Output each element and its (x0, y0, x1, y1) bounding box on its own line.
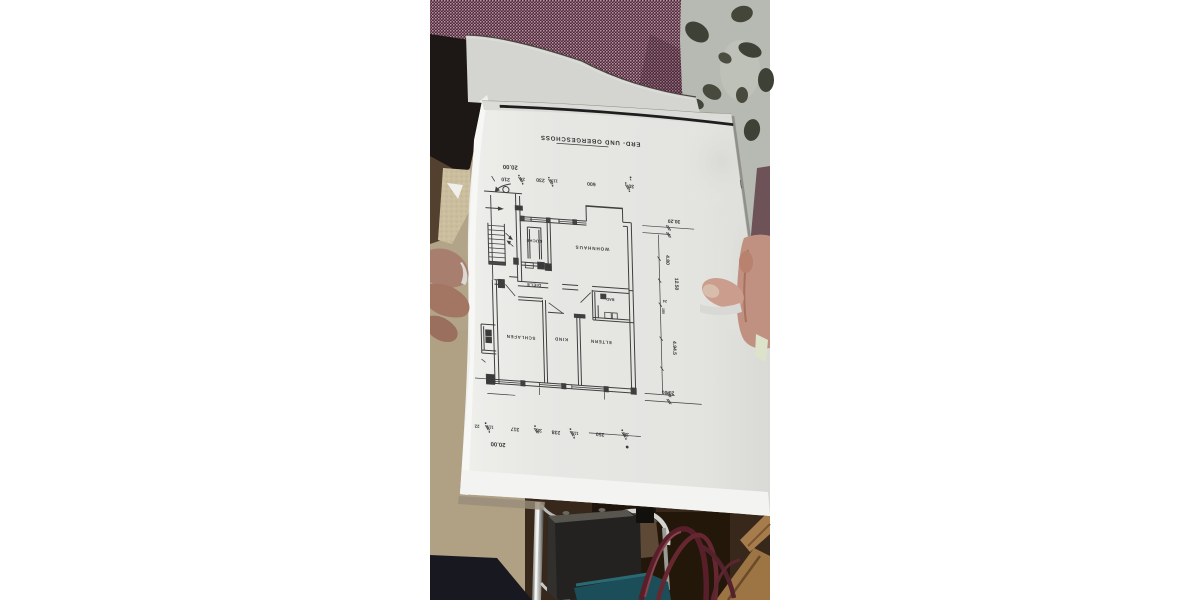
svg-text:30.20: 30.20 (667, 217, 680, 224)
svg-text:180: 180 (661, 308, 665, 314)
svg-text:210: 210 (501, 175, 510, 182)
svg-text:20.00: 20.00 (490, 440, 506, 447)
svg-text:115: 115 (550, 178, 558, 184)
svg-text:20.00: 20.00 (502, 163, 518, 170)
svg-text:22: 22 (474, 424, 480, 429)
svg-text:KIND: KIND (554, 336, 568, 342)
svg-text:DIELE: DIELE (526, 282, 541, 288)
svg-text:230: 230 (536, 176, 545, 183)
svg-text:600: 600 (587, 180, 596, 187)
svg-text:BAD: BAD (606, 297, 615, 302)
svg-text:238: 238 (551, 428, 560, 435)
svg-text:20.00: 20.00 (662, 389, 675, 396)
svg-text:317: 317 (510, 425, 519, 432)
svg-text:4.94.5: 4.94.5 (671, 341, 677, 356)
svg-text:4.80: 4.80 (664, 255, 670, 265)
svg-text:24: 24 (663, 299, 667, 303)
svg-text:12.50: 12.50 (673, 278, 679, 291)
